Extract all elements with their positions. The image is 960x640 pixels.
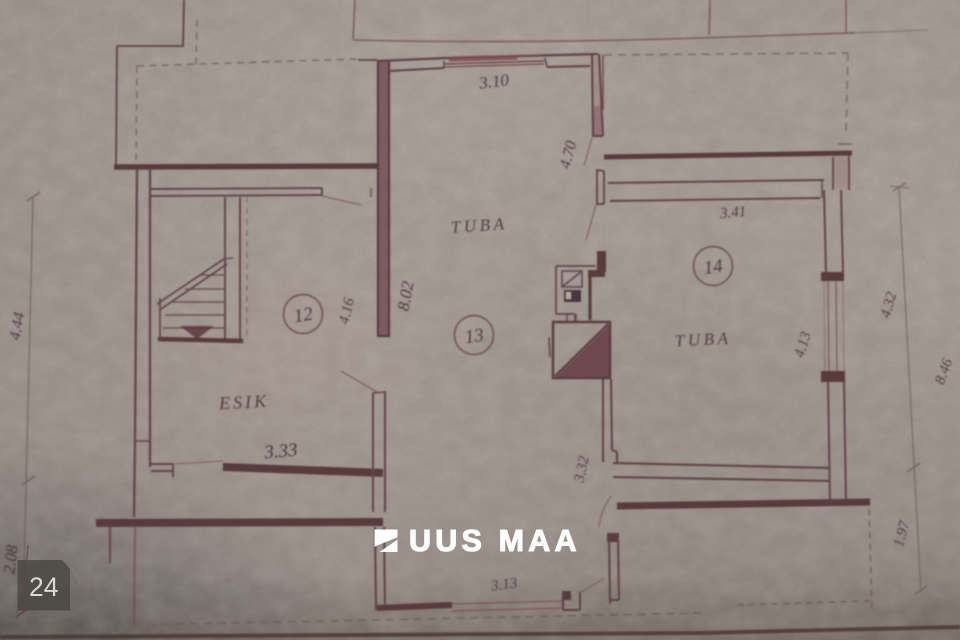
svg-text:TUBA: TUBA — [674, 329, 731, 351]
svg-text:3.41: 3.41 — [718, 204, 747, 222]
svg-text:3.10: 3.10 — [477, 70, 510, 93]
svg-text:3.13: 3.13 — [489, 575, 518, 594]
svg-text:13: 13 — [463, 325, 485, 348]
svg-text:24: 24 — [29, 572, 58, 602]
svg-text:TUBA: TUBA — [450, 214, 508, 237]
svg-text:ESIK: ESIK — [218, 391, 270, 414]
svg-text:UUS MAA: UUS MAA — [409, 524, 581, 558]
svg-text:14: 14 — [702, 256, 724, 280]
svg-text:3.33: 3.33 — [262, 440, 298, 464]
